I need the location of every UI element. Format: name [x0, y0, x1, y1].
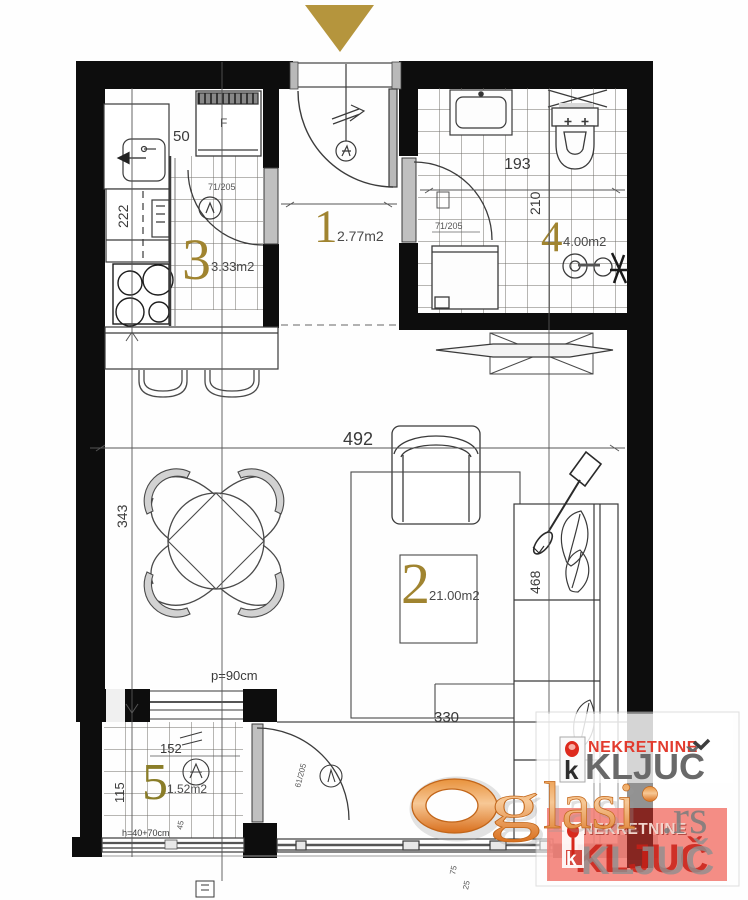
svg-text:1.52m2: 1.52m2 [167, 782, 207, 796]
svg-text:222: 222 [115, 204, 131, 228]
svg-text:330: 330 [434, 709, 459, 726]
svg-text:2: 2 [401, 551, 430, 616]
svg-text:210: 210 [527, 191, 543, 215]
svg-text:p=90cm: p=90cm [211, 668, 258, 683]
svg-text:1: 1 [314, 201, 338, 253]
svg-text:50: 50 [173, 128, 190, 145]
svg-text:g: g [489, 768, 541, 842]
svg-text:F: F [220, 116, 227, 130]
svg-text:3.33m2: 3.33m2 [211, 259, 254, 274]
svg-text:468: 468 [527, 570, 543, 594]
svg-text:343: 343 [114, 504, 130, 528]
svg-text:h=40+70cm: h=40+70cm [122, 828, 170, 838]
svg-text:71/205: 71/205 [435, 221, 463, 231]
svg-text:4: 4 [541, 214, 563, 261]
svg-text:115: 115 [112, 782, 127, 803]
svg-text:193: 193 [504, 156, 531, 173]
svg-text:5: 5 [142, 754, 168, 811]
svg-text:21.00m2: 21.00m2 [429, 588, 480, 603]
svg-text:k: k [566, 849, 577, 870]
svg-text:2.77m2: 2.77m2 [337, 228, 384, 244]
svg-text:lasi: lasi [543, 769, 636, 843]
svg-text:492: 492 [343, 429, 373, 449]
svg-text:152: 152 [160, 741, 182, 756]
svg-text:.rs: .rs [661, 791, 708, 844]
svg-text:4.00m2: 4.00m2 [563, 234, 606, 249]
svg-text:3: 3 [182, 227, 211, 292]
